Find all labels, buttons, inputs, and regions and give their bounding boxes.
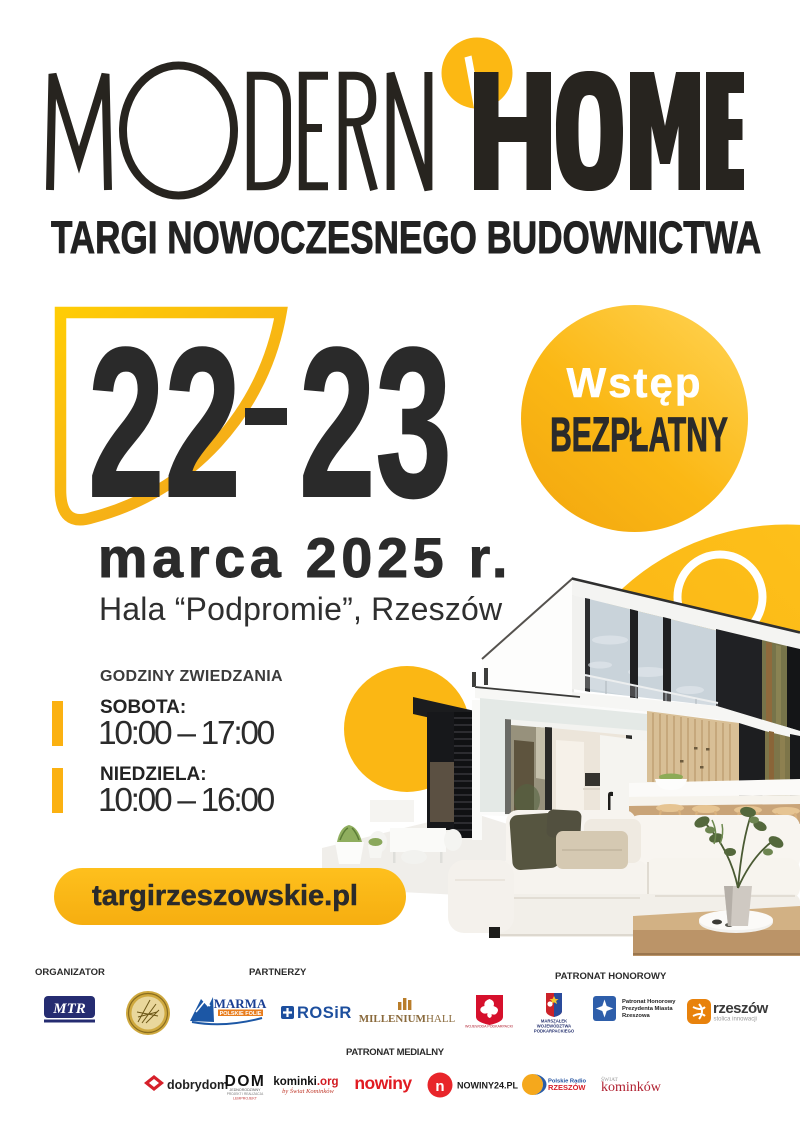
svg-text:Prezydenta Miasta: Prezydenta Miasta [622, 1006, 673, 1012]
svg-text:nowiny: nowiny [354, 1073, 412, 1093]
svg-text:MILLENIUMHALL: MILLENIUMHALL [359, 1013, 456, 1025]
svg-text:rzeszów: rzeszów [713, 1000, 769, 1017]
svg-text:MTR: MTR [52, 1001, 86, 1017]
svg-text:NOWINY24.PL: NOWINY24.PL [457, 1081, 519, 1091]
svg-text:MARMA: MARMA [214, 996, 267, 1011]
svg-text:LEMPROJEKT: LEMPROJEKT [233, 1097, 258, 1101]
svg-text:n: n [435, 1078, 444, 1095]
svg-text:Rzeszowa: Rzeszowa [622, 1013, 650, 1019]
svg-text:by Świat Kominków: by Świat Kominków [282, 1087, 334, 1095]
svg-text:POLSKIE FOLIE: POLSKIE FOLIE [220, 1011, 262, 1017]
svg-text:PODKARPACKIEGO: PODKARPACKIEGO [534, 1029, 575, 1034]
svg-text:ROSiR: ROSiR [297, 1004, 352, 1022]
svg-text:kominki.org: kominki.org [273, 1076, 338, 1088]
svg-text:dobrydom: dobrydom [167, 1078, 228, 1092]
svg-text:Patronat Honorowy: Patronat Honorowy [622, 999, 676, 1005]
svg-text:WOJEWODA PODKARPACKI: WOJEWODA PODKARPACKI [465, 1025, 513, 1029]
svg-text:stolica innowacji: stolica innowacji [714, 1017, 757, 1023]
svg-text:RZESZÓW: RZESZÓW [548, 1083, 586, 1092]
svg-text:PROJEKT I REALIZACJA: PROJEKT I REALIZACJA [227, 1092, 264, 1096]
svg-text:kominków: kominków [601, 1080, 662, 1095]
